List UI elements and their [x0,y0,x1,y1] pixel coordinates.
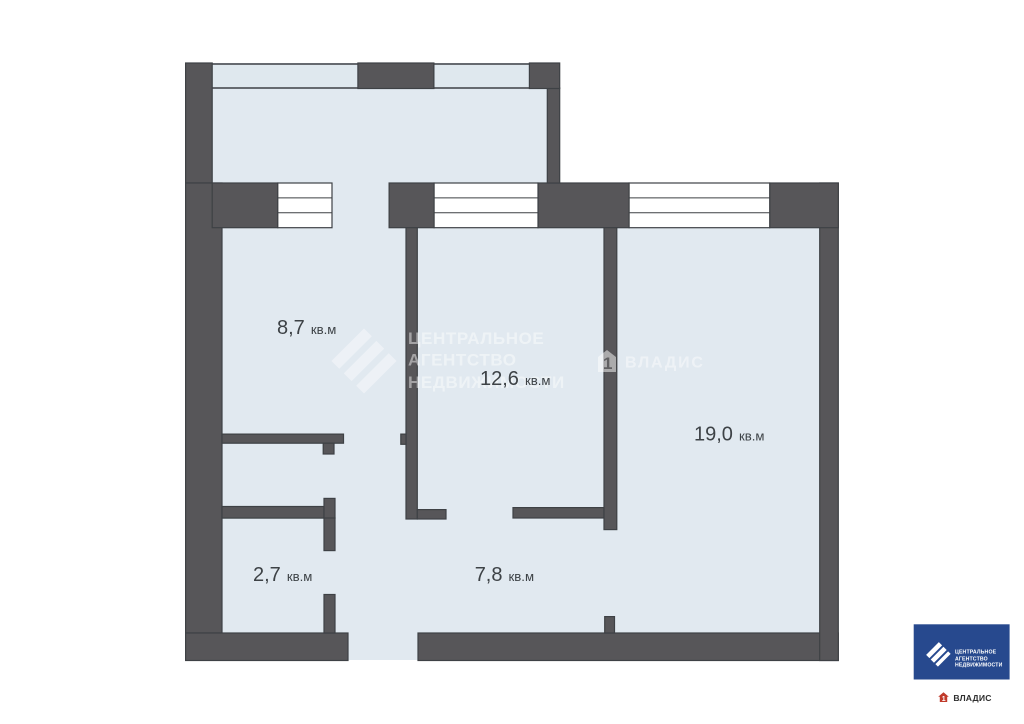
svg-text:ВЛАДИС: ВЛАДИС [625,355,705,372]
svg-text:АГЕНТСТВО: АГЕНТСТВО [955,656,988,662]
svg-text:1: 1 [942,696,946,703]
svg-text:АГЕНТСТВО: АГЕНТСТВО [408,351,517,370]
svg-text:ЦЕНТРАЛЬНОЕ: ЦЕНТРАЛЬНОЕ [408,329,544,348]
svg-text:ВЛАДИС: ВЛАДИС [953,693,991,703]
svg-text:НЕДВИЖИМОСТИ: НЕДВИЖИМОСТИ [955,663,1003,669]
svg-text:ЦЕНТРАЛЬНОЕ: ЦЕНТРАЛЬНОЕ [955,649,997,655]
svg-text:1: 1 [603,354,612,373]
